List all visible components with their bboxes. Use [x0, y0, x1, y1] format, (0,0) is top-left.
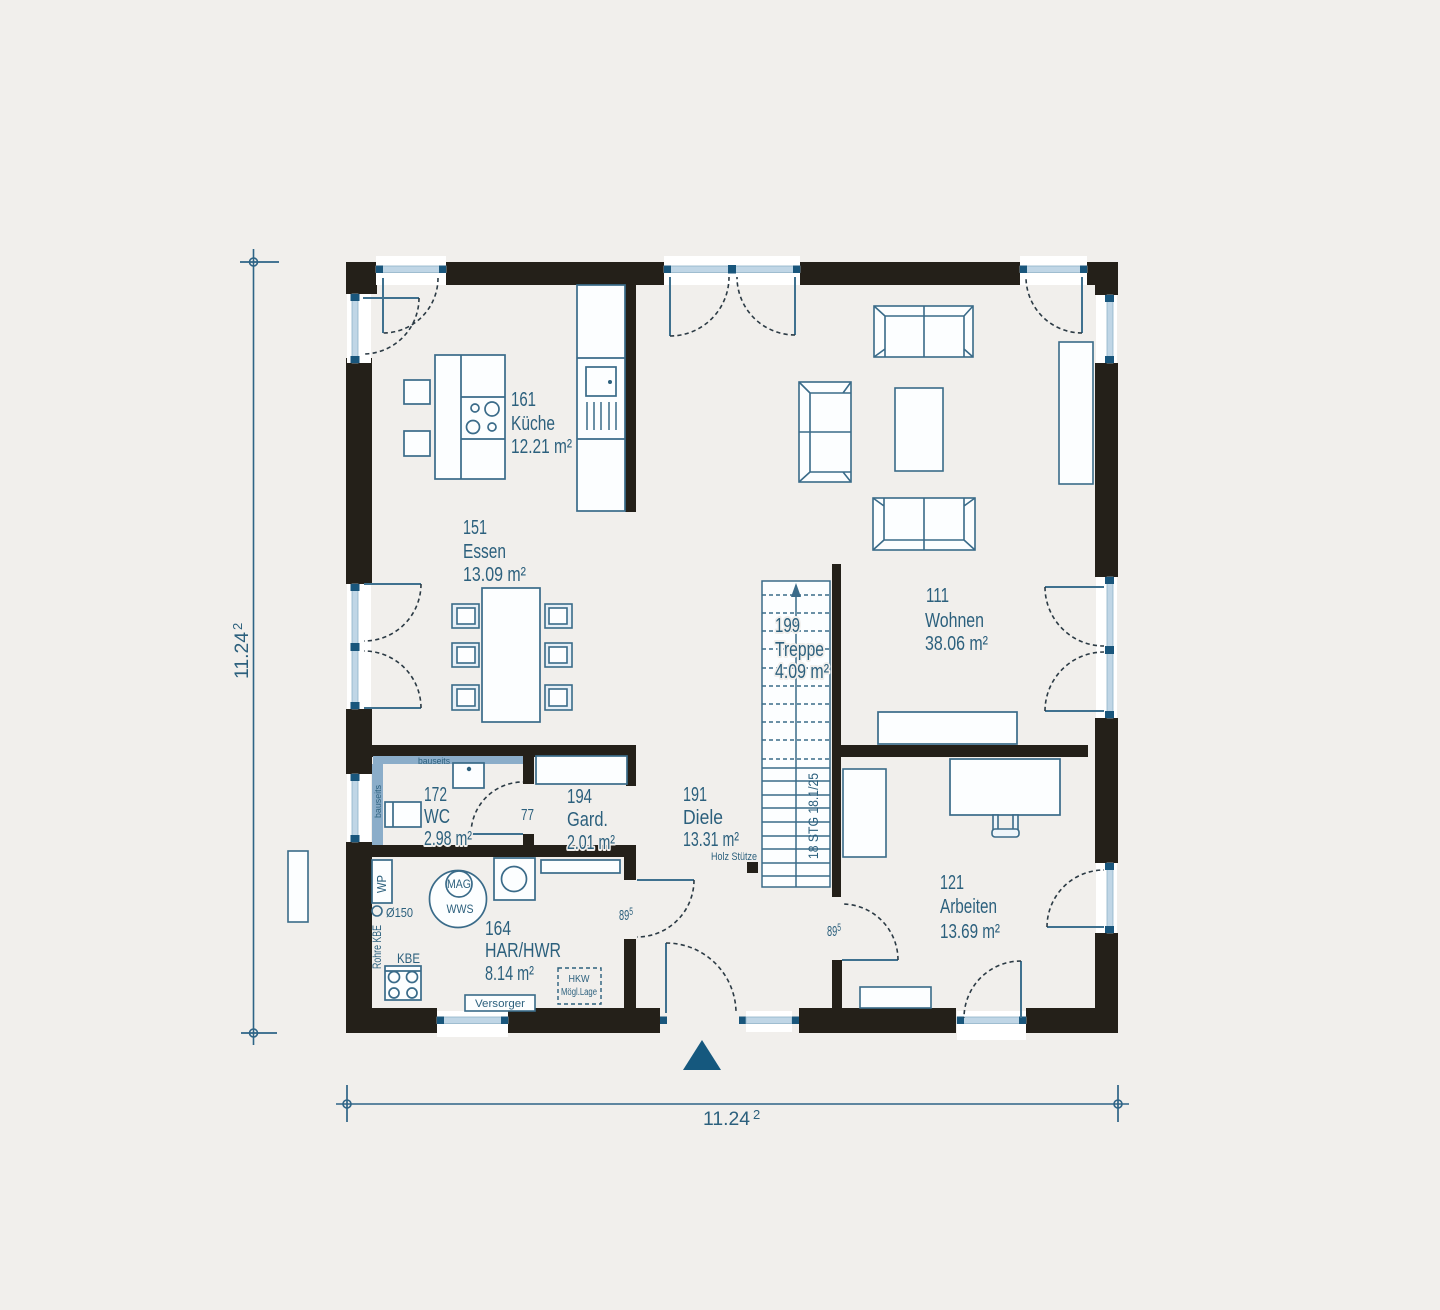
- svg-text:18 STG 18.1/25: 18 STG 18.1/25: [805, 773, 821, 859]
- svg-text:77: 77: [521, 807, 534, 824]
- svg-text:Gard.: Gard.: [567, 809, 608, 831]
- svg-text:2.01 m²: 2.01 m²: [567, 832, 615, 854]
- svg-text:12.21 m²: 12.21 m²: [511, 436, 572, 458]
- svg-text:191: 191: [683, 784, 707, 806]
- svg-text:Holz Stütze: Holz Stütze: [711, 851, 757, 863]
- svg-text:Treppe: Treppe: [775, 639, 824, 661]
- svg-text:161: 161: [511, 389, 536, 411]
- svg-text:WP: WP: [374, 875, 389, 893]
- svg-text:MAG: MAG: [447, 877, 471, 891]
- svg-text:bauseits: bauseits: [418, 756, 450, 767]
- svg-text:121: 121: [940, 872, 964, 894]
- svg-text:4.09 m²: 4.09 m²: [775, 661, 829, 683]
- svg-text:Versorger: Versorger: [475, 998, 525, 1010]
- svg-text:172: 172: [424, 784, 447, 806]
- svg-text:KBE: KBE: [397, 950, 420, 966]
- svg-text:2.98 m²: 2.98 m²: [424, 828, 472, 850]
- svg-text:11.24: 11.24: [703, 1109, 750, 1130]
- svg-text:38.06 m²: 38.06 m²: [925, 633, 988, 655]
- svg-text:2: 2: [230, 623, 245, 630]
- svg-text:194: 194: [567, 786, 592, 808]
- svg-text:Küche: Küche: [511, 413, 555, 435]
- svg-text:2: 2: [753, 1107, 760, 1122]
- svg-text:WWS: WWS: [447, 902, 474, 916]
- svg-text:151: 151: [463, 517, 487, 539]
- svg-text:Diele: Diele: [683, 807, 723, 829]
- svg-text:WC: WC: [424, 806, 450, 828]
- svg-text:8.14 m²: 8.14 m²: [485, 963, 534, 985]
- svg-text:Rohre KBE: Rohre KBE: [370, 925, 384, 969]
- svg-text:13.09 m²: 13.09 m²: [463, 564, 526, 586]
- svg-text:111: 111: [926, 585, 949, 607]
- svg-text:Essen: Essen: [463, 541, 506, 563]
- svg-text:HKW: HKW: [569, 974, 590, 985]
- svg-text:13.69 m²: 13.69 m²: [940, 921, 1000, 943]
- svg-text:164: 164: [485, 918, 511, 940]
- svg-text:Ø150: Ø150: [386, 905, 413, 920]
- svg-text:Wohnen: Wohnen: [925, 610, 984, 632]
- svg-text:Arbeiten: Arbeiten: [940, 896, 997, 918]
- svg-text:Mögl.Lage: Mögl.Lage: [561, 987, 597, 998]
- svg-text:bauseits: bauseits: [373, 785, 384, 818]
- svg-text:HAR/HWR: HAR/HWR: [485, 940, 561, 962]
- svg-text:11.24: 11.24: [232, 632, 253, 679]
- svg-text:199: 199: [775, 615, 800, 637]
- svg-text:13.31 m²: 13.31 m²: [683, 829, 739, 851]
